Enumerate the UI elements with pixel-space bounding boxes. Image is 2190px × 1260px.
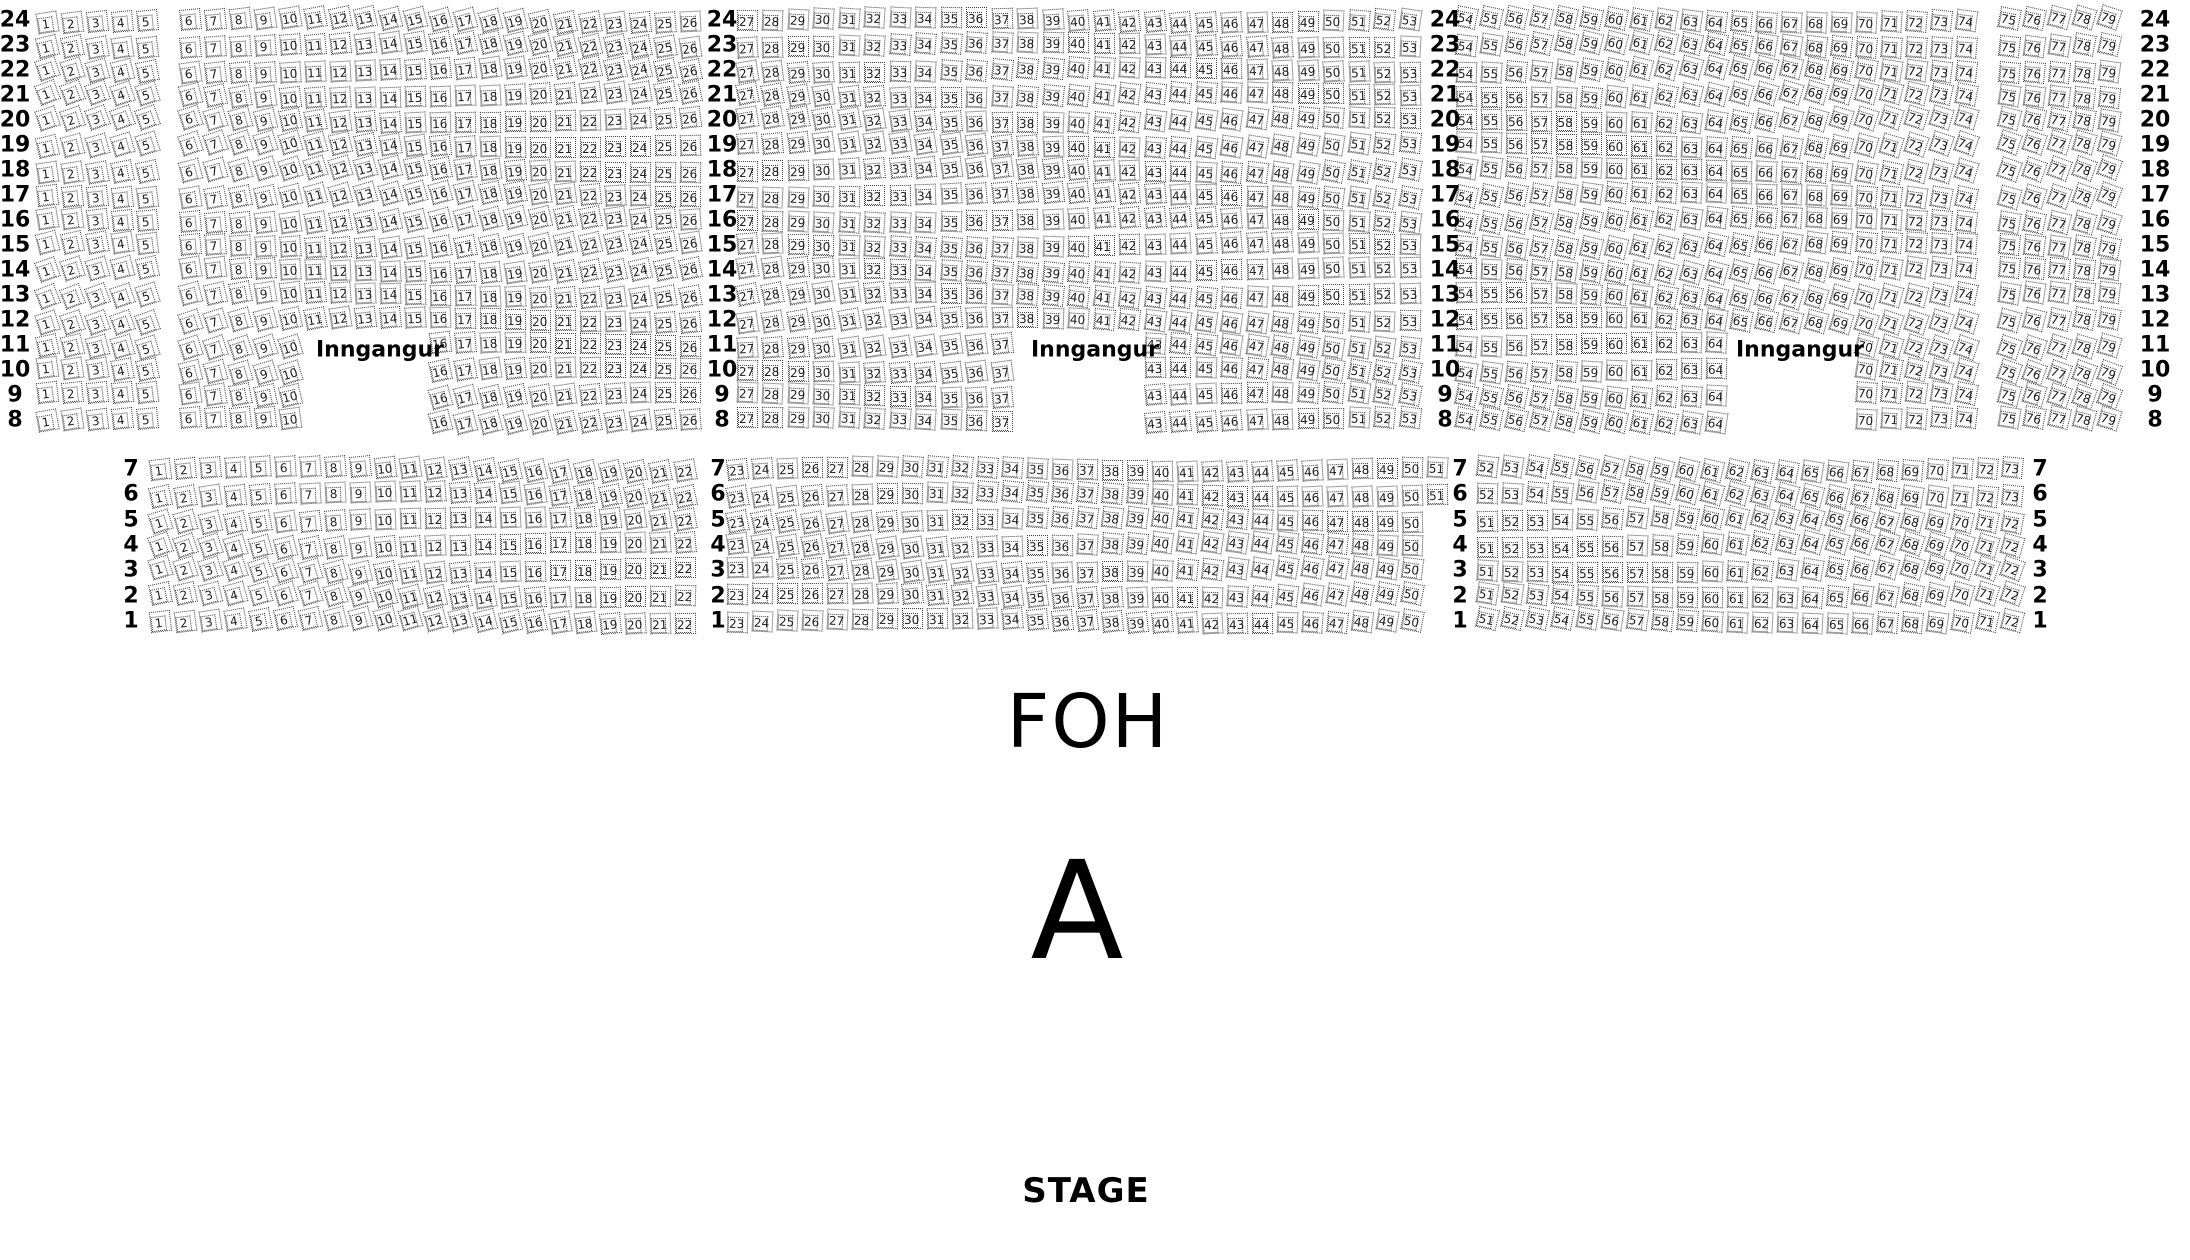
seat[interactable]: 59 [1578, 235, 1603, 260]
seat[interactable]: 5 [135, 186, 159, 210]
seat[interactable]: 43 [1144, 161, 1165, 182]
seat[interactable]: 73 [2000, 484, 2023, 507]
seat[interactable]: 37 [991, 386, 1014, 409]
seat[interactable]: 6 [179, 233, 202, 256]
seat[interactable]: 20 [529, 332, 550, 353]
seat[interactable]: 67 [1778, 107, 1804, 133]
seat[interactable]: 27 [825, 557, 848, 580]
seat[interactable]: 28 [850, 535, 874, 559]
seat[interactable]: 12 [327, 154, 353, 180]
seat[interactable]: 30 [901, 582, 924, 605]
seat[interactable]: 5 [248, 510, 272, 534]
seat[interactable]: 29 [875, 510, 898, 533]
seat[interactable]: 19 [504, 332, 526, 354]
seat[interactable]: 71 [1950, 485, 1974, 509]
seat[interactable]: 33 [889, 211, 911, 233]
seat[interactable]: 64 [1704, 308, 1728, 332]
seat[interactable]: 40 [1068, 136, 1089, 157]
seat[interactable]: 70 [1855, 36, 1878, 59]
seat[interactable]: 71 [1878, 105, 1904, 131]
seat[interactable]: 36 [1050, 506, 1073, 529]
seat[interactable]: 3 [84, 57, 110, 83]
seat[interactable]: 29 [787, 8, 809, 30]
seat[interactable]: 67 [1780, 161, 1803, 184]
seat[interactable]: 22 [578, 205, 603, 230]
seat[interactable]: 58 [1650, 505, 1674, 529]
seat[interactable]: 70 [1949, 555, 1976, 582]
seat[interactable]: 48 [1271, 311, 1295, 335]
seat[interactable]: 40 [1151, 559, 1173, 581]
seat[interactable]: 33 [888, 108, 912, 132]
seat[interactable]: 60 [1603, 30, 1628, 55]
seat[interactable]: 18 [477, 30, 502, 55]
seat[interactable]: 12 [423, 561, 447, 585]
seat[interactable]: 64 [1703, 81, 1729, 107]
seat[interactable]: 62 [1653, 30, 1678, 55]
seat[interactable]: 45 [1194, 286, 1217, 309]
seat[interactable]: 78 [2072, 281, 2095, 304]
seat[interactable]: 18 [573, 482, 598, 507]
seat[interactable]: 60 [1604, 85, 1628, 109]
seat[interactable]: 67 [1850, 484, 1875, 509]
seat[interactable]: 17 [454, 112, 475, 133]
seat[interactable]: 70 [1853, 133, 1879, 159]
seat[interactable]: 46 [1220, 310, 1244, 334]
seat[interactable]: 33 [976, 480, 999, 503]
seat[interactable]: 11 [397, 606, 423, 632]
seat[interactable]: 31 [837, 281, 861, 305]
seat[interactable]: 62 [1654, 83, 1679, 108]
seat[interactable]: 1 [35, 381, 58, 404]
seat[interactable]: 11 [302, 182, 328, 208]
seat[interactable]: 34 [914, 236, 937, 259]
seat[interactable]: 22 [579, 161, 600, 182]
seat[interactable]: 51 [1347, 159, 1372, 184]
seat[interactable]: 19 [598, 483, 623, 508]
seat[interactable]: 74 [1955, 36, 1978, 59]
seat[interactable]: 62 [1654, 111, 1677, 134]
seat[interactable]: 22 [673, 459, 697, 483]
seat[interactable]: 42 [1118, 261, 1140, 283]
seat[interactable]: 55 [1479, 406, 1504, 431]
seat[interactable]: 36 [965, 360, 989, 384]
seat[interactable]: 26 [801, 582, 822, 603]
seat[interactable]: 60 [1605, 135, 1626, 156]
seat[interactable]: 11 [397, 583, 423, 609]
seat[interactable]: 46 [1221, 382, 1242, 403]
seat[interactable]: 74 [1953, 105, 1979, 131]
seat[interactable]: 60 [1605, 111, 1627, 133]
seat[interactable]: 51 [1348, 407, 1370, 429]
seat[interactable]: 72 [1975, 484, 1998, 507]
seat[interactable]: 24 [629, 162, 650, 183]
seat[interactable]: 23 [604, 136, 625, 157]
seat[interactable]: 3 [85, 407, 108, 430]
seat[interactable]: 52 [1374, 283, 1396, 305]
seat[interactable]: 73 [1930, 36, 1953, 59]
seat[interactable]: 77 [2046, 382, 2072, 408]
seat[interactable]: 61 [1629, 207, 1654, 232]
seat[interactable]: 71 [1880, 36, 1903, 59]
seat[interactable]: 18 [574, 587, 596, 609]
seat[interactable]: 2 [59, 105, 86, 132]
seat[interactable]: 40 [1150, 531, 1174, 555]
seat[interactable]: 65 [1825, 556, 1850, 581]
seat[interactable]: 47 [1326, 459, 1348, 481]
seat[interactable]: 40 [1068, 32, 1089, 53]
seat[interactable]: 79 [2097, 86, 2120, 109]
seat[interactable]: 60 [1604, 260, 1629, 285]
seat[interactable]: 50 [1323, 37, 1345, 59]
seat[interactable]: 68 [1875, 484, 1900, 509]
seat[interactable]: 14 [377, 180, 403, 206]
seat[interactable]: 79 [2097, 108, 2121, 132]
seat[interactable]: 9 [253, 6, 277, 30]
seat[interactable]: 24 [629, 311, 651, 333]
seat[interactable]: 25 [654, 357, 676, 379]
seat[interactable]: 38 [1101, 587, 1124, 610]
seat[interactable]: 62 [1653, 233, 1678, 258]
seat[interactable]: 20 [529, 160, 551, 182]
seat[interactable]: 15 [499, 533, 520, 554]
seat[interactable]: 36 [966, 7, 987, 28]
seat[interactable]: 71 [1880, 408, 1902, 430]
seat[interactable]: 32 [862, 131, 886, 155]
seat[interactable]: 2 [60, 35, 85, 60]
seat[interactable]: 7 [202, 281, 227, 306]
seat[interactable]: 11 [303, 5, 328, 30]
seat[interactable]: 11 [303, 108, 327, 132]
seat[interactable]: 59 [1578, 408, 1603, 433]
seat[interactable]: 7 [297, 606, 322, 631]
seat[interactable]: 34 [914, 211, 936, 233]
seat[interactable]: 29 [787, 186, 809, 208]
seat[interactable]: 55 [1479, 156, 1503, 180]
seat[interactable]: 22 [578, 382, 601, 405]
seat[interactable]: 8 [229, 35, 252, 58]
seat[interactable]: 14 [472, 608, 497, 633]
seat[interactable]: 51 [1348, 256, 1370, 278]
seat[interactable]: 12 [328, 306, 352, 330]
seat[interactable]: 52 [1374, 84, 1396, 106]
seat[interactable]: 2 [59, 56, 85, 82]
seat[interactable]: 35 [1026, 457, 1048, 479]
seat[interactable]: 32 [863, 235, 885, 257]
seat[interactable]: 23 [604, 382, 627, 405]
seat[interactable]: 53 [1525, 583, 1548, 606]
seat[interactable]: 39 [1125, 505, 1149, 529]
seat[interactable]: 3 [85, 208, 108, 231]
seat[interactable]: 24 [629, 108, 652, 131]
seat[interactable]: 34 [914, 109, 937, 132]
seat[interactable]: 16 [429, 284, 451, 306]
seat[interactable]: 2 [60, 356, 84, 380]
seat[interactable]: 60 [1603, 234, 1628, 259]
seat[interactable]: 46 [1300, 556, 1324, 580]
seat[interactable]: 41 [1093, 159, 1115, 181]
seat[interactable]: 67 [1779, 33, 1803, 57]
seat[interactable]: 68 [1804, 34, 1828, 58]
seat[interactable]: 25 [775, 510, 800, 535]
seat[interactable]: 55 [1576, 536, 1597, 557]
seat[interactable]: 17 [549, 587, 571, 609]
seat[interactable]: 13 [352, 5, 377, 30]
seat[interactable]: 5 [134, 334, 160, 360]
seat[interactable]: 58 [1554, 385, 1578, 409]
seat[interactable]: 2 [60, 408, 84, 432]
seat[interactable]: 50 [1323, 210, 1345, 232]
seat[interactable]: 65 [1800, 459, 1824, 483]
seat[interactable]: 40 [1068, 235, 1089, 256]
seat[interactable]: 45 [1195, 357, 1217, 379]
seat[interactable]: 23 [602, 56, 627, 81]
seat[interactable]: 4 [109, 309, 136, 336]
seat[interactable]: 29 [787, 407, 809, 429]
seat[interactable]: 33 [889, 7, 911, 29]
seat[interactable]: 16 [427, 6, 453, 32]
seat[interactable]: 50 [1400, 608, 1425, 633]
seat[interactable]: 37 [1075, 609, 1098, 632]
seat[interactable]: 48 [1270, 334, 1294, 358]
seat[interactable]: 37 [991, 283, 1013, 305]
seat[interactable]: 29 [875, 558, 899, 582]
seat[interactable]: 19 [503, 55, 527, 79]
seat[interactable]: 67 [1874, 555, 1900, 581]
seat[interactable]: 54 [1525, 454, 1550, 479]
seat[interactable]: 73 [1929, 256, 1953, 280]
seat[interactable]: 60 [1605, 157, 1627, 179]
seat[interactable]: 45 [1195, 34, 1218, 57]
seat[interactable]: 69 [1829, 57, 1854, 82]
seat[interactable]: 71 [1951, 457, 1974, 480]
seat[interactable]: 45 [1194, 135, 1218, 159]
seat[interactable]: 20 [529, 137, 550, 158]
seat[interactable]: 3 [85, 185, 108, 208]
seat[interactable]: 17 [452, 180, 478, 206]
seat[interactable]: 61 [1629, 84, 1653, 108]
seat[interactable]: 35 [940, 110, 963, 133]
seat[interactable]: 40 [1151, 483, 1173, 505]
seat[interactable]: 29 [787, 61, 810, 84]
seat[interactable]: 30 [812, 211, 834, 233]
seat[interactable]: 45 [1275, 556, 1299, 580]
seat[interactable]: 49 [1296, 311, 1319, 334]
seat[interactable]: 21 [554, 310, 575, 331]
seat[interactable]: 53 [1500, 454, 1524, 478]
seat[interactable]: 49 [1376, 458, 1397, 479]
seat[interactable]: 40 [1067, 207, 1089, 229]
seat[interactable]: 35 [939, 132, 963, 156]
seat[interactable]: 7 [203, 256, 227, 280]
seat[interactable]: 32 [862, 307, 886, 331]
seat[interactable]: 52 [1374, 61, 1396, 83]
seat[interactable]: 40 [1150, 506, 1174, 530]
seat[interactable]: 78 [2072, 60, 2095, 83]
seat[interactable]: 60 [1701, 587, 1723, 609]
seat[interactable]: 47 [1246, 58, 1268, 80]
seat[interactable]: 11 [304, 86, 327, 109]
seat[interactable]: 10 [373, 560, 398, 585]
seat[interactable]: 37 [1076, 459, 1098, 481]
seat[interactable]: 39 [1125, 610, 1148, 633]
seat[interactable]: 11 [304, 236, 327, 259]
seat[interactable]: 62 [1655, 307, 1678, 330]
seat[interactable]: 61 [1628, 56, 1653, 81]
seat[interactable]: 55 [1479, 210, 1504, 235]
seat[interactable]: 59 [1579, 6, 1604, 31]
seat[interactable]: 63 [1679, 307, 1702, 330]
seat[interactable]: 34 [914, 306, 937, 329]
seat[interactable]: 57 [1528, 407, 1553, 432]
seat[interactable]: 55 [1576, 562, 1597, 583]
seat[interactable]: 63 [1679, 9, 1703, 33]
seat[interactable]: 43 [1143, 82, 1166, 105]
seat[interactable]: 30 [813, 36, 835, 58]
seat[interactable]: 64 [1775, 459, 1799, 483]
seat[interactable]: 58 [1555, 134, 1576, 155]
seat[interactable]: 49 [1375, 609, 1399, 633]
seat[interactable]: 59 [1580, 283, 1603, 306]
seat[interactable]: 59 [1676, 587, 1698, 609]
seat[interactable]: 35 [939, 333, 963, 357]
seat[interactable]: 2 [173, 457, 196, 480]
seat[interactable]: 48 [1271, 36, 1293, 58]
seat[interactable]: 45 [1195, 383, 1217, 405]
seat[interactable]: 77 [2046, 183, 2073, 210]
seat[interactable]: 35 [940, 7, 961, 28]
seat[interactable]: 14 [474, 561, 497, 584]
seat[interactable]: 39 [1126, 460, 1147, 481]
seat[interactable]: 36 [965, 386, 987, 408]
seat[interactable]: 44 [1169, 309, 1193, 333]
seat[interactable]: 61 [1699, 480, 1725, 506]
seat[interactable]: 38 [1101, 533, 1124, 556]
seat[interactable]: 74 [1953, 308, 1979, 334]
seat[interactable]: 44 [1250, 531, 1274, 555]
seat[interactable]: 1 [34, 230, 60, 256]
seat[interactable]: 34 [1000, 561, 1023, 584]
seat[interactable]: 5 [134, 309, 161, 336]
seat[interactable]: 8 [324, 509, 347, 532]
seat[interactable]: 26 [679, 162, 701, 184]
seat[interactable]: 4 [110, 209, 133, 232]
seat[interactable]: 47 [1246, 286, 1268, 308]
seat[interactable]: 66 [1754, 33, 1778, 57]
seat[interactable]: 37 [991, 8, 1012, 29]
seat[interactable]: 22 [674, 557, 695, 578]
seat[interactable]: 15 [404, 86, 426, 108]
seat[interactable]: 67 [1778, 80, 1804, 106]
seat[interactable]: 59 [1579, 385, 1603, 409]
seat[interactable]: 62 [1655, 385, 1678, 408]
seat[interactable]: 60 [1604, 386, 1628, 410]
seat[interactable]: 16 [522, 458, 547, 483]
seat[interactable]: 66 [1849, 556, 1874, 581]
seat[interactable]: 64 [1801, 586, 1824, 609]
seat[interactable]: 56 [1503, 407, 1528, 432]
seat[interactable]: 46 [1220, 161, 1243, 184]
seat[interactable]: 38 [1017, 112, 1038, 133]
seat[interactable]: 47 [1245, 107, 1269, 131]
seat[interactable]: 34 [915, 386, 937, 408]
seat[interactable]: 51 [1426, 456, 1448, 478]
seat[interactable]: 60 [1699, 505, 1724, 530]
seat[interactable]: 55 [1480, 109, 1501, 130]
seat[interactable]: 6 [273, 606, 298, 631]
seat[interactable]: 58 [1554, 181, 1578, 205]
seat[interactable]: 23 [602, 230, 627, 255]
seat[interactable]: 45 [1194, 108, 1218, 132]
seat[interactable]: 49 [1297, 83, 1318, 104]
seat[interactable]: 36 [965, 260, 988, 283]
seat[interactable]: 43 [1143, 109, 1167, 133]
seat[interactable]: 20 [529, 82, 552, 105]
seat[interactable]: 27 [735, 105, 759, 129]
seat[interactable]: 12 [424, 481, 447, 504]
seat[interactable]: 78 [2072, 234, 2096, 258]
seat[interactable]: 30 [813, 186, 835, 208]
seat[interactable]: 39 [1042, 236, 1064, 258]
seat[interactable]: 71 [1974, 580, 2000, 606]
seat[interactable]: 11 [302, 155, 328, 181]
seat[interactable]: 56 [1505, 307, 1526, 328]
seat[interactable]: 1 [147, 531, 174, 558]
seat[interactable]: 2 [58, 283, 85, 310]
seat[interactable]: 59 [1676, 609, 1699, 632]
seat[interactable]: 53 [1398, 210, 1422, 234]
seat[interactable]: 2 [60, 185, 83, 208]
seat[interactable]: 36 [1050, 586, 1073, 609]
seat[interactable]: 66 [1753, 55, 1779, 81]
seat[interactable]: 29 [787, 211, 809, 233]
seat[interactable]: 26 [679, 134, 701, 156]
seat[interactable]: 35 [939, 156, 963, 180]
seat[interactable]: 27 [825, 510, 849, 534]
seat[interactable]: 14 [473, 585, 497, 609]
seat[interactable]: 10 [372, 582, 398, 608]
seat[interactable]: 56 [1503, 5, 1528, 30]
seat[interactable]: 71 [1974, 555, 2001, 582]
seat[interactable]: 17 [452, 7, 478, 33]
seat[interactable]: 44 [1169, 34, 1191, 56]
seat[interactable]: 51 [1347, 132, 1371, 156]
seat[interactable]: 17 [454, 135, 477, 158]
seat[interactable]: 15 [404, 261, 426, 283]
seat[interactable]: 49 [1297, 106, 1320, 129]
seat[interactable]: 1 [35, 10, 59, 34]
seat[interactable]: 28 [851, 456, 873, 478]
seat[interactable]: 42 [1201, 485, 1222, 506]
seat[interactable]: 73 [1929, 9, 1952, 32]
seat[interactable]: 32 [863, 211, 885, 233]
seat[interactable]: 46 [1221, 185, 1242, 206]
seat[interactable]: 13 [354, 86, 376, 108]
seat[interactable]: 5 [135, 231, 159, 255]
seat[interactable]: 58 [1553, 209, 1578, 234]
seat[interactable]: 20 [624, 531, 646, 553]
seat[interactable]: 74 [1954, 8, 1978, 32]
seat[interactable]: 25 [653, 408, 676, 431]
seat[interactable]: 26 [800, 534, 824, 558]
seat[interactable]: 32 [950, 583, 973, 606]
seat[interactable]: 8 [227, 106, 253, 132]
seat[interactable]: 59 [1580, 111, 1601, 132]
seat[interactable]: 18 [477, 8, 503, 34]
seat[interactable]: 24 [628, 230, 653, 255]
seat[interactable]: 45 [1194, 310, 1218, 334]
seat[interactable]: 61 [1629, 181, 1652, 204]
seat[interactable]: 52 [1373, 131, 1396, 154]
